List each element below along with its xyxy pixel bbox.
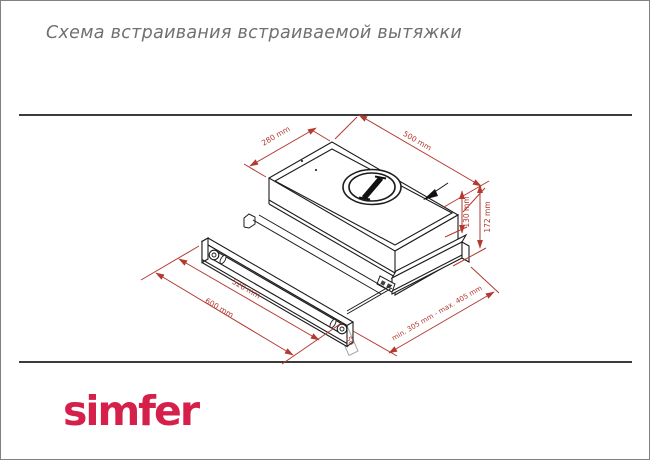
dim-280-label: 280 mm bbox=[260, 124, 292, 147]
scheme-page: Схема встраивания встраиваемой вытяжки bbox=[0, 0, 650, 460]
dim-600-label: 600 mm bbox=[203, 296, 235, 319]
dim-range-label: min. 305 mm - max. 405 mm bbox=[390, 284, 483, 342]
brand-logo: simfer bbox=[63, 387, 198, 435]
tray-left-step bbox=[244, 214, 255, 228]
dim-130-label: 130 mm bbox=[462, 196, 471, 227]
screw-dot bbox=[315, 169, 317, 171]
dim-172-label: 172 mm bbox=[483, 201, 492, 232]
dim-range-line bbox=[389, 292, 494, 353]
exhaust-marker-arrow bbox=[423, 183, 448, 200]
screw-dot bbox=[301, 160, 303, 162]
